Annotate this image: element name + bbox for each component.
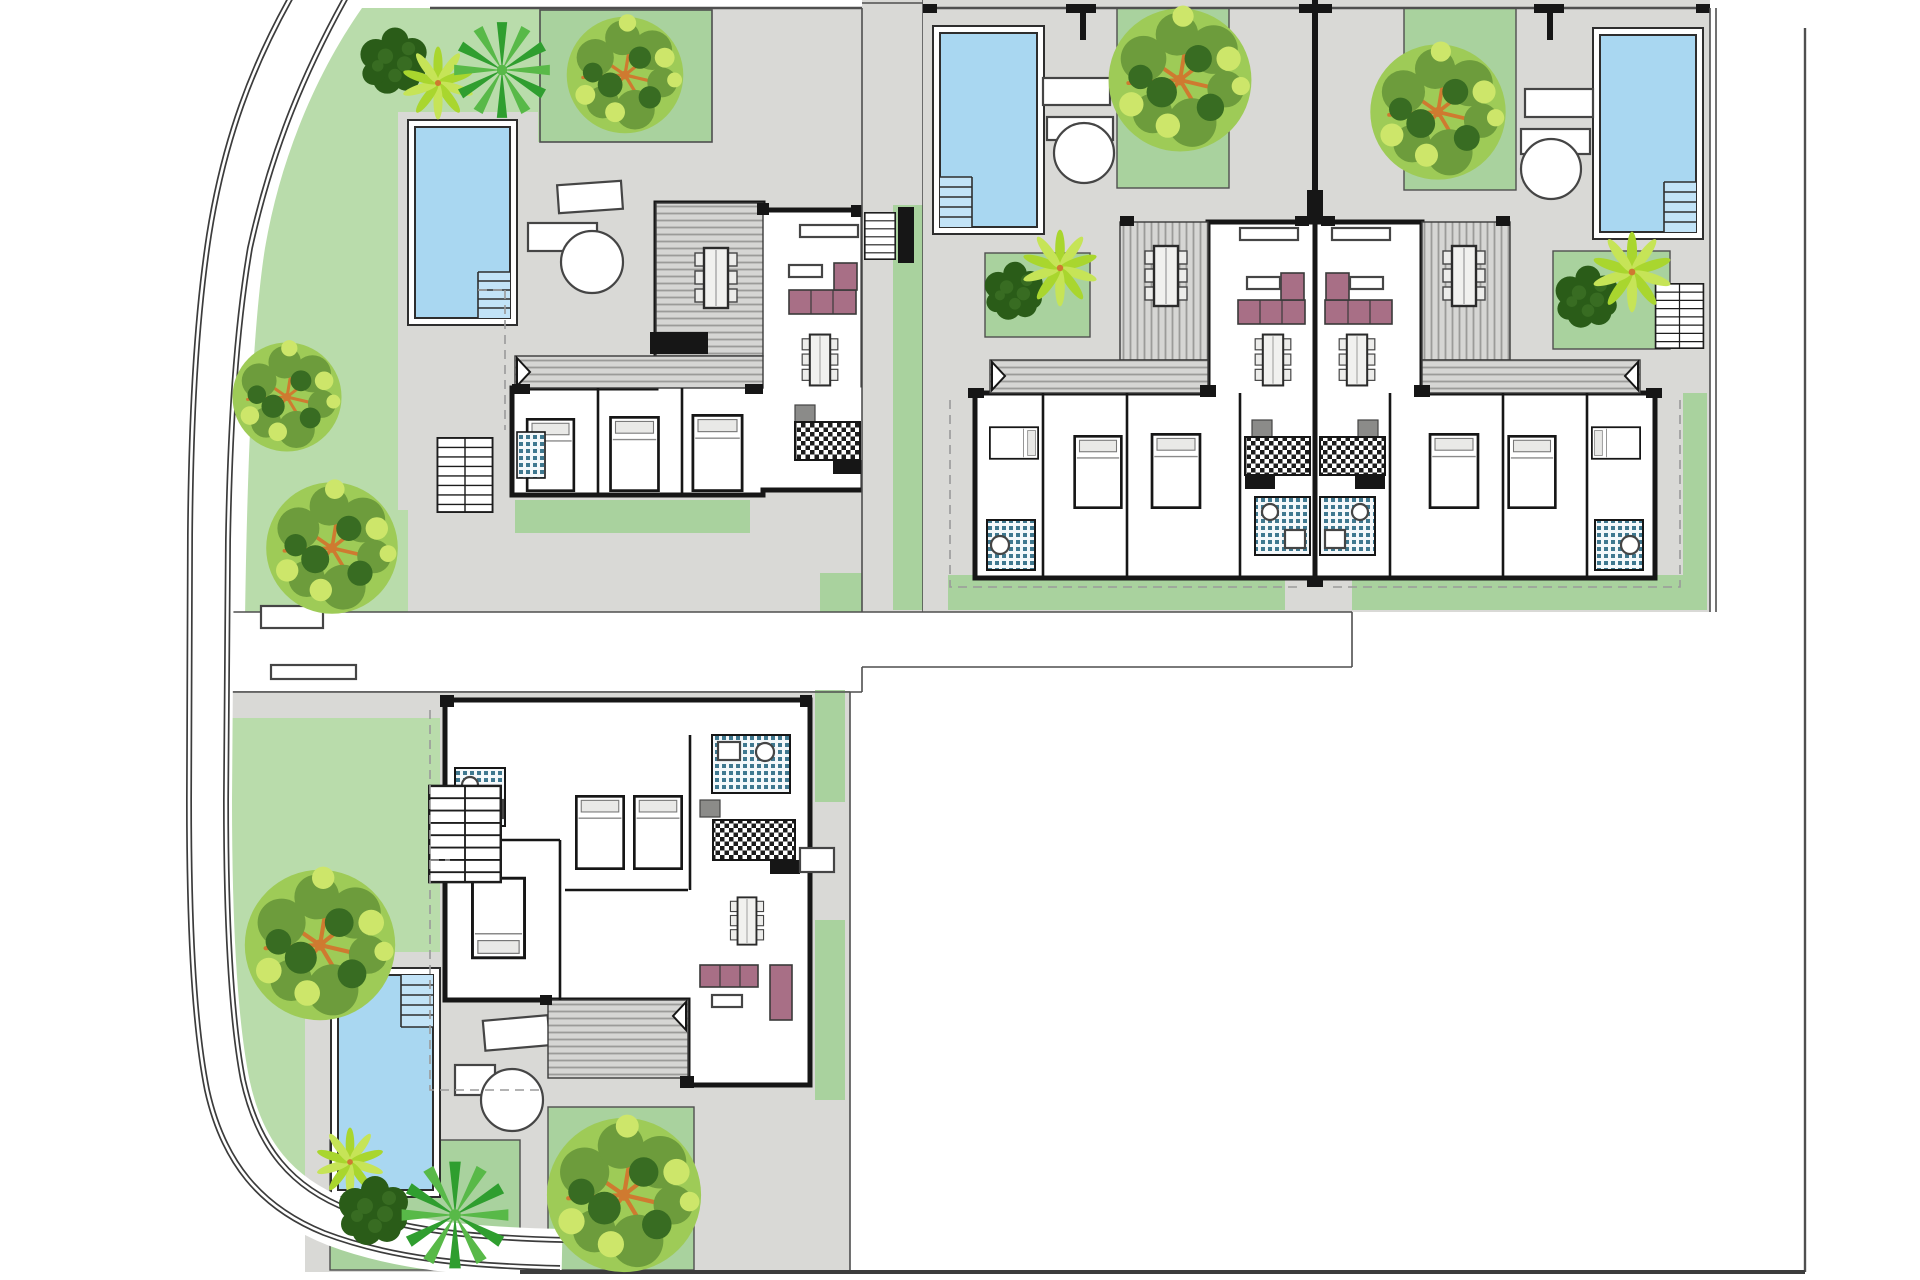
sun-lounger (1525, 89, 1593, 117)
villa1-deck-dining-table (695, 248, 737, 308)
site-plan-drawing (0, 0, 1920, 1280)
unit-west-bathroom-2 (987, 520, 1035, 570)
unit-east-side-lawn (1683, 393, 1707, 610)
entry-pad-south (271, 665, 356, 679)
villa1-kitchen (795, 422, 860, 460)
villa1-kitchen-counter (795, 405, 815, 422)
unit-west-bed-2 (1075, 436, 1122, 507)
unit-east-external-stairs (1656, 284, 1704, 348)
unit-east-dining-table (1339, 335, 1375, 386)
unit-west-kitchen-counter (1252, 420, 1272, 437)
unit-east-deck-walkway (1422, 360, 1640, 393)
unit-east-kitchen (1320, 437, 1385, 475)
villa1-bed-3 (693, 415, 742, 490)
villa4-bathroom-2 (712, 735, 790, 793)
unit-east-bathroom-2 (1595, 520, 1643, 570)
villa1-bathroom-2 (517, 432, 545, 478)
villa1-coffee-table (789, 265, 822, 277)
corridor-gate-wall (898, 207, 914, 263)
villa4-deck-terrace (548, 1000, 688, 1078)
villa4-dining-table (730, 897, 763, 944)
unit-west-kitchen (1245, 437, 1310, 475)
villa4-kitchen-counter (700, 800, 720, 817)
plot4-side-lawn-north (815, 690, 845, 802)
villa4-kitchen (713, 820, 795, 860)
unit-east-bed-2 (1509, 436, 1556, 507)
unit-east-bed-3 (1430, 434, 1478, 507)
villa4-coffee-table (712, 995, 742, 1007)
sun-lounger (557, 181, 623, 213)
villa1-bed-2 (611, 417, 659, 490)
unit-east-sideboard (1332, 228, 1390, 240)
villa1-sideboard (800, 225, 858, 237)
unit-east-bed-1 (1592, 427, 1640, 459)
round-table (561, 231, 623, 293)
site-plan-canvas (0, 0, 1920, 1280)
round-table (1521, 139, 1581, 199)
unit-west-coffee-table (1247, 277, 1280, 289)
unit-west-bed-1 (990, 427, 1038, 459)
villa1-deck-walkway (515, 356, 763, 388)
unit-west-pool (933, 26, 1044, 234)
pedestrian-walkway (226, 606, 1352, 692)
unit-west-sideboard (1240, 228, 1298, 240)
villa1-dining-table (802, 335, 838, 386)
villa4-bed-3 (634, 796, 681, 868)
villa1-wall-block (650, 332, 708, 354)
villa1-appliance (833, 460, 863, 474)
villa4-bed-2 (576, 796, 623, 868)
unit-west-dining-table (1255, 335, 1291, 386)
sun-lounger (483, 1015, 550, 1051)
plot4-side-lawn-south (815, 920, 845, 1100)
villa4-appliance (770, 860, 800, 874)
unit-west-appliance (1245, 475, 1275, 489)
corridor-entry-stairs (865, 213, 895, 259)
unit-east-kitchen-counter (1358, 420, 1378, 437)
unit-east-deck-dining-table (1443, 246, 1485, 306)
round-table (481, 1069, 543, 1131)
villa1-external-stairs (437, 438, 492, 512)
unit-east-pool (1593, 28, 1703, 239)
unit-west-deck-walkway (990, 360, 1208, 393)
unit-west-bathroom (1255, 497, 1310, 555)
corridor-lawn-strip (893, 205, 923, 610)
plot1-pool (408, 120, 517, 325)
unit-east-bathroom (1320, 497, 1375, 555)
villa4-entry-pad (800, 848, 834, 872)
unit-west-deck-dining-table (1145, 246, 1187, 306)
round-table (1054, 123, 1114, 183)
sun-lounger (1043, 78, 1110, 105)
unit-east-coffee-table (1350, 277, 1383, 289)
unit-east-appliance (1355, 475, 1385, 489)
duplex-party-wall-upper (1312, 0, 1318, 222)
villa4-bed-1 (472, 878, 524, 958)
plot1-rear-lawn-strip (515, 500, 750, 533)
villa4-external-stairs (429, 786, 501, 882)
unit-west-bed-3 (1152, 434, 1200, 507)
